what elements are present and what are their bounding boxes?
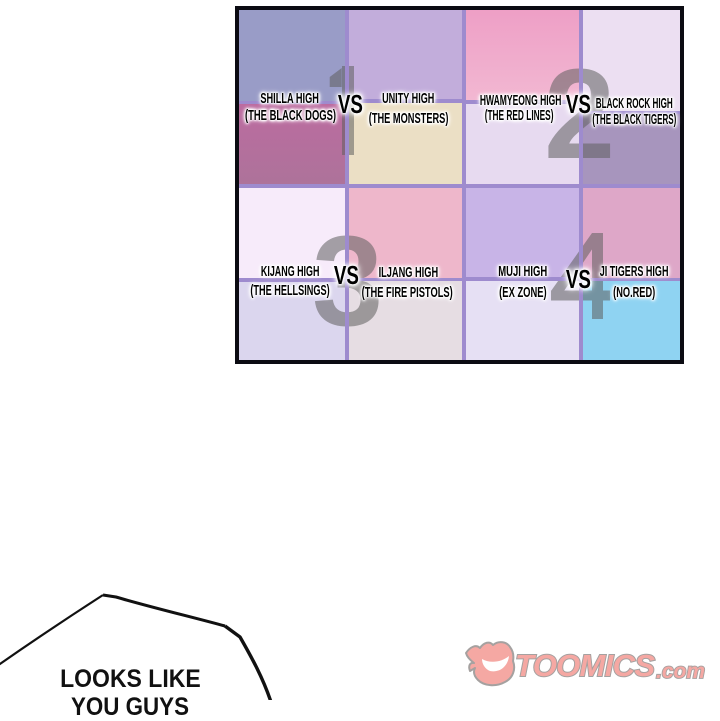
- svg-text:TOOMICS: TOOMICS: [515, 648, 655, 683]
- svg-text:.com: .com: [656, 660, 705, 683]
